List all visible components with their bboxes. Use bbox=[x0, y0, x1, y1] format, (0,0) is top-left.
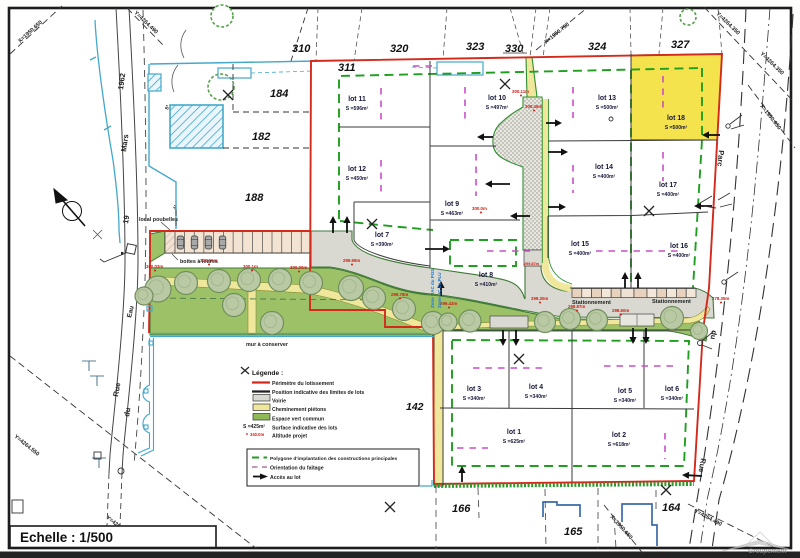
svg-text:S =618m²: S =618m² bbox=[608, 442, 631, 448]
svg-text:S =596m²: S =596m² bbox=[346, 106, 369, 112]
svg-text:lot 6: lot 6 bbox=[665, 386, 679, 393]
svg-text:166: 166 bbox=[452, 503, 471, 515]
svg-text:lot 8: lot 8 bbox=[479, 272, 493, 279]
svg-text:S =497m²: S =497m² bbox=[486, 105, 509, 111]
svg-text:298.60m: 298.60m bbox=[612, 308, 629, 313]
svg-text:lot 5: lot 5 bbox=[618, 388, 632, 395]
svg-text:lot 9: lot 9 bbox=[445, 201, 459, 208]
svg-text:310: 310 bbox=[292, 43, 311, 55]
svg-text:300.46m: 300.46m bbox=[525, 104, 542, 109]
svg-text:340.0m: 340.0m bbox=[250, 432, 264, 437]
svg-text:299.78m: 299.78m bbox=[391, 292, 408, 297]
svg-text:lot 15: lot 15 bbox=[571, 241, 589, 248]
svg-text:lot 17: lot 17 bbox=[659, 182, 677, 189]
svg-text:Périmètre du lotissement: Périmètre du lotissement bbox=[272, 381, 334, 387]
svg-text:299.98m: 299.98m bbox=[343, 258, 360, 263]
svg-text:S =425m²: S =425m² bbox=[243, 424, 265, 430]
svg-text:165: 165 bbox=[564, 526, 583, 538]
svg-text:S =400m²: S =400m² bbox=[657, 192, 680, 198]
svg-text:324: 324 bbox=[588, 41, 606, 53]
svg-text:mur à conserver: mur à conserver bbox=[246, 342, 289, 348]
svg-text:Cheminement piétons: Cheminement piétons bbox=[272, 407, 326, 413]
svg-text:Accès au lot: Accès au lot bbox=[270, 475, 301, 481]
svg-text:299.30m: 299.30m bbox=[531, 296, 548, 301]
svg-text:Surface indicative des lots: Surface indicative des lots bbox=[272, 426, 338, 432]
svg-text:S =450m²: S =450m² bbox=[346, 176, 369, 182]
svg-text:164: 164 bbox=[662, 502, 680, 514]
svg-text:S =463m²: S =463m² bbox=[441, 211, 464, 217]
svg-text:S =500m²: S =500m² bbox=[596, 105, 619, 111]
svg-text:S =500m²: S =500m² bbox=[665, 125, 688, 131]
svg-text:188: 188 bbox=[245, 192, 264, 204]
svg-text:300.1m: 300.1m bbox=[243, 264, 258, 269]
svg-text:300.0m: 300.0m bbox=[472, 206, 487, 211]
svg-text:lot 12: lot 12 bbox=[348, 166, 366, 173]
svg-text:lot 10: lot 10 bbox=[488, 95, 506, 102]
svg-text:S =340m²: S =340m² bbox=[525, 394, 548, 400]
svg-text:S =400m²: S =400m² bbox=[668, 253, 691, 259]
svg-text:278.35m: 278.35m bbox=[712, 296, 729, 301]
svg-text:299.87m: 299.87m bbox=[524, 262, 540, 266]
svg-text:local poubelles: local poubelles bbox=[139, 217, 178, 223]
svg-text:320: 320 bbox=[390, 43, 409, 55]
svg-text:182: 182 bbox=[252, 131, 270, 143]
svg-text:323: 323 bbox=[466, 41, 484, 53]
svg-text:19: 19 bbox=[121, 215, 131, 225]
svg-text:300.00m: 300.00m bbox=[290, 265, 307, 270]
svg-text:Position indicative des limite: Position indicative des limites de lots bbox=[272, 390, 364, 396]
svg-text:300.46m: 300.46m bbox=[200, 258, 217, 263]
svg-text:Polygone d'implantation des co: Polygone d'implantation des construction… bbox=[270, 456, 398, 462]
svg-text:S =400m²: S =400m² bbox=[593, 174, 616, 180]
svg-text:lot 3: lot 3 bbox=[467, 386, 481, 393]
svg-text:lot 18: lot 18 bbox=[667, 115, 685, 122]
svg-text:lot 4: lot 4 bbox=[529, 384, 543, 391]
svg-text:lot 2: lot 2 bbox=[612, 432, 626, 439]
svg-text:Groupement: Groupement bbox=[748, 548, 787, 555]
svg-text:Espace vert commun: Espace vert commun bbox=[272, 417, 324, 423]
svg-text:184: 184 bbox=[270, 88, 288, 100]
svg-text:299.42m: 299.42m bbox=[440, 301, 457, 306]
svg-text:S =340m²: S =340m² bbox=[614, 398, 637, 404]
svg-text:Légende :: Légende : bbox=[252, 370, 283, 377]
svg-text:Zone UC du PLU: Zone UC du PLU bbox=[437, 273, 442, 309]
svg-text:lot 11: lot 11 bbox=[348, 96, 366, 103]
svg-text:Altitude projet: Altitude projet bbox=[272, 434, 307, 440]
svg-text:300.03m: 300.03m bbox=[146, 264, 163, 269]
svg-text:S =400m²: S =400m² bbox=[569, 251, 592, 257]
svg-text:S =340m²: S =340m² bbox=[661, 396, 684, 402]
svg-text:lot 7: lot 7 bbox=[375, 232, 389, 239]
svg-text:lot 13: lot 13 bbox=[598, 95, 616, 102]
svg-text:142: 142 bbox=[406, 401, 424, 413]
svg-text:S =625m²: S =625m² bbox=[503, 439, 526, 445]
svg-text:S =410m²: S =410m² bbox=[475, 282, 498, 288]
svg-text:S =340m²: S =340m² bbox=[463, 396, 486, 402]
svg-text:327: 327 bbox=[671, 39, 690, 51]
svg-text:Zone UAC du POS: Zone UAC du POS bbox=[430, 269, 435, 308]
svg-text:S =390m²: S =390m² bbox=[371, 242, 394, 248]
svg-text:Echelle : 1/500: Echelle : 1/500 bbox=[20, 530, 113, 545]
svg-text:lot 16: lot 16 bbox=[670, 243, 688, 250]
svg-text:311: 311 bbox=[338, 62, 356, 74]
svg-text:lot 14: lot 14 bbox=[595, 164, 613, 171]
svg-text:lot 1: lot 1 bbox=[507, 429, 521, 436]
svg-text:300.11m: 300.11m bbox=[512, 89, 529, 94]
svg-text:Orientation du faîtage: Orientation du faîtage bbox=[270, 466, 324, 472]
svg-text:298.87m: 298.87m bbox=[568, 304, 585, 309]
svg-text:Stationnement: Stationnement bbox=[652, 299, 691, 305]
svg-text:Voirie: Voirie bbox=[272, 399, 286, 405]
